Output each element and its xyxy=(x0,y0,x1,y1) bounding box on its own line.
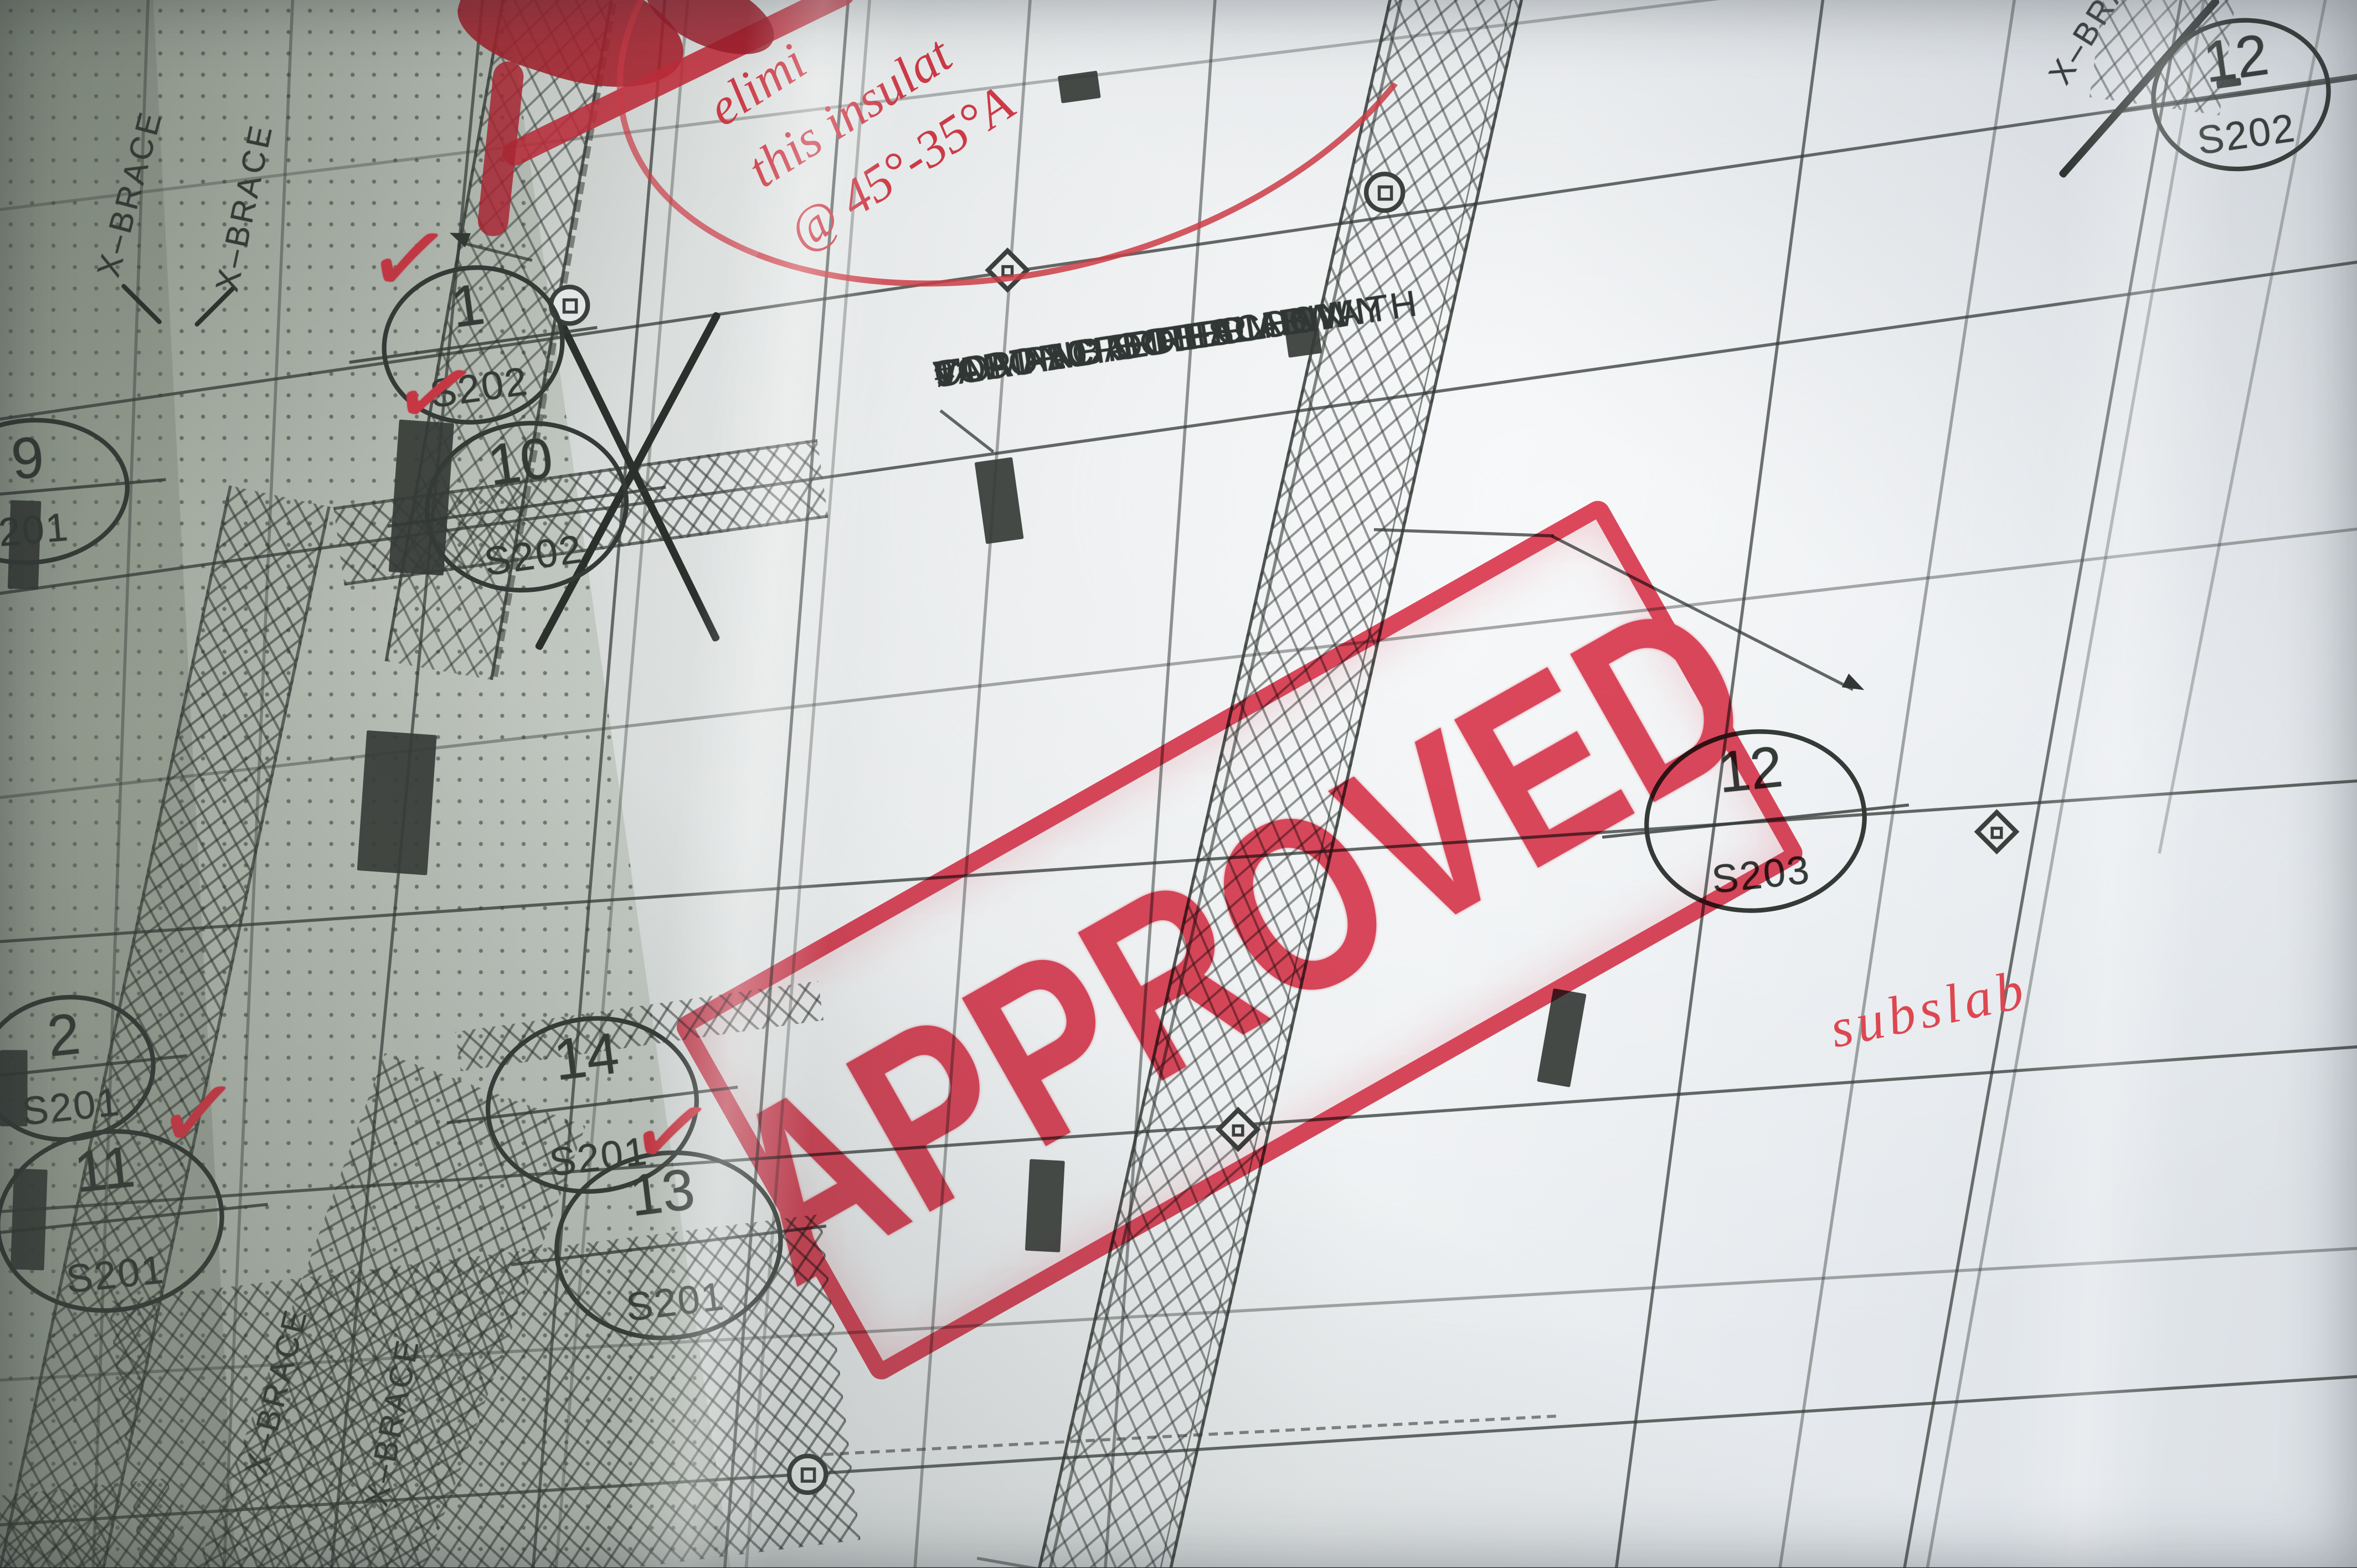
red-check-icon: ✓ xyxy=(152,1053,245,1175)
column-grid-circle-node xyxy=(1364,172,1405,213)
column-marker xyxy=(357,730,437,875)
red-check-icon: ✓ xyxy=(359,195,459,323)
column-grid-circle-node xyxy=(787,1454,828,1495)
blueprint-photo: 1 S202 10 S202 12 S202 12 S203 14 S201 1… xyxy=(0,0,2357,1568)
